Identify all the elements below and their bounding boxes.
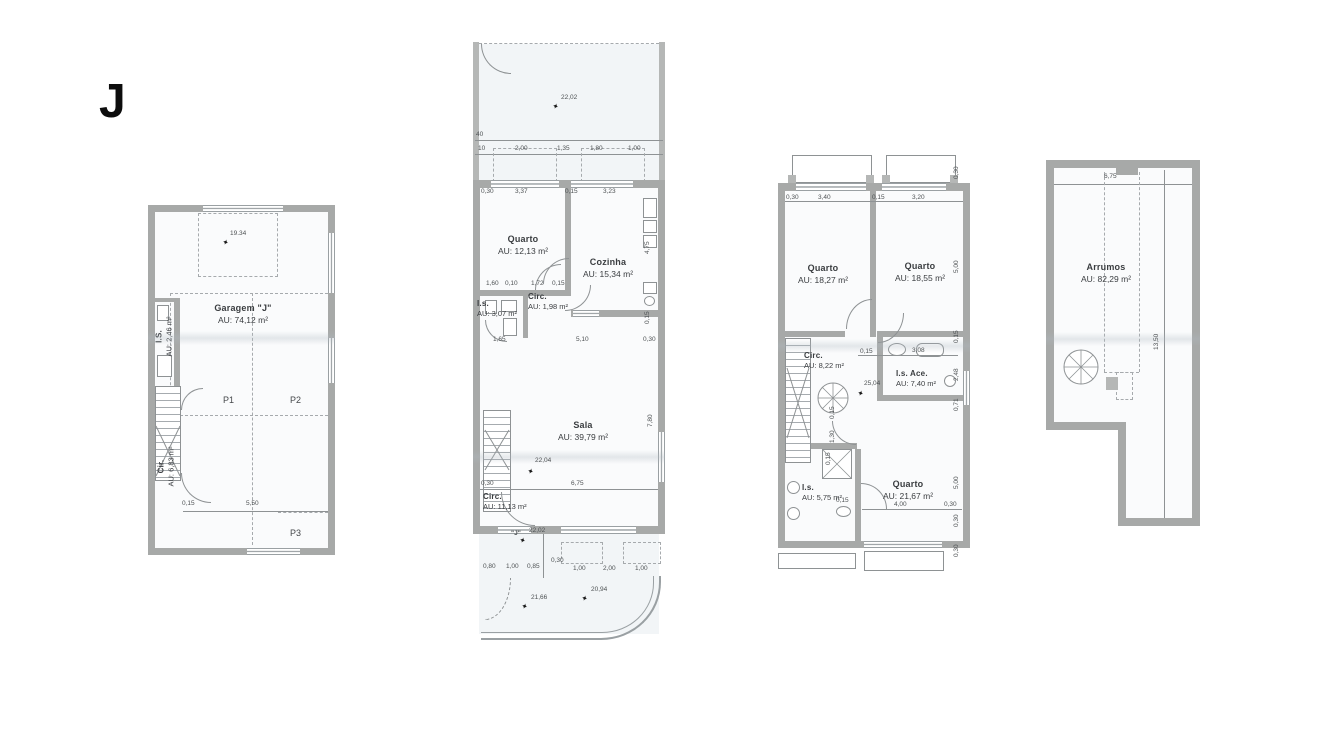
dimension-label: 1,65 (493, 337, 506, 344)
dimension-label: 25,04 (864, 381, 880, 388)
dimension-label: 7,80 (648, 414, 655, 427)
dimension-label: 0,30 (551, 558, 564, 565)
dimension-label: 10 (478, 146, 485, 153)
level-marker-icon: ✦ (221, 238, 230, 248)
dimension-label: 1,00 (573, 566, 586, 573)
dimension-label: 3,37 (515, 189, 528, 196)
dimension-label: 3,08 (912, 348, 925, 355)
dimension-label: 3,40 (818, 195, 831, 202)
dimension-label: 0,30 (786, 195, 799, 202)
level-marker-icon: ✦ (526, 467, 535, 477)
unit-letter: J (99, 74, 126, 129)
dimension-label: 0,30 (643, 337, 656, 344)
dimension-label: 0,15 (872, 195, 885, 202)
annotation-layer: 22,0240102,001,351,801,000,303,370,153,2… (473, 42, 665, 642)
dimension-label: 5,50 (246, 501, 259, 508)
dimension-label: 19.34 (230, 231, 246, 238)
annotation-layer: 19.340,155,50✦ (148, 205, 335, 555)
dimension-label: 0,15 (645, 311, 652, 324)
dimension-label: 1,72 (531, 281, 544, 288)
dimension-label: 0,80 (483, 564, 496, 571)
dimension-label: 2,00 (515, 146, 528, 153)
dimension-label: 2,00 (603, 566, 616, 573)
floor-plan-main: "J" Quarto AU: 12,13 m² Cozinha AU: 15,3… (473, 42, 665, 642)
dimension-label: 4,75 (645, 241, 652, 254)
dimension-label: 5,10 (576, 337, 589, 344)
dimension-label: 0,30 (954, 166, 961, 179)
dimension-label: 0,10 (505, 281, 518, 288)
dimension-label: 6,75 (571, 481, 584, 488)
annotation-layer: 6,7513,50 (1046, 160, 1200, 526)
floorplan-sheet: { "unit": { "letter": "J" }, "garage": {… (0, 0, 1328, 747)
dimension-label: 0,15 (552, 281, 565, 288)
floor-plan-bedrooms: Quarto AU: 18,27 m² Quarto AU: 18,55 m² … (778, 153, 970, 577)
dimension-label: 40 (476, 132, 483, 139)
dimension-label: 5,00 (954, 260, 961, 273)
dimension-label: 0,30 (954, 514, 961, 527)
dimension-label: 0,30 (944, 502, 957, 509)
level-marker-icon: ✦ (518, 536, 527, 546)
dimension-label: 1,00 (506, 564, 519, 571)
dimension-label: 6,75 (1104, 174, 1117, 181)
dimension-label: 20,94 (591, 587, 607, 594)
dimension-label: 0,15 (830, 406, 837, 419)
dimension-label: 0,15 (565, 189, 578, 196)
dimension-label: 21,66 (531, 595, 547, 602)
dimension-label: 0,85 (527, 564, 540, 571)
dimension-label: 0,15 (836, 498, 849, 505)
dimension-label: 13,50 (1154, 334, 1161, 350)
dimension-label: 0,71 (954, 398, 961, 411)
dimension-label: 22,04 (535, 458, 551, 465)
level-marker-icon: ✦ (551, 102, 560, 112)
dimension-label: 0,30 (954, 544, 961, 557)
dimension-label: 1,00 (635, 566, 648, 573)
dimension-label: 1,30 (830, 430, 837, 443)
dimension-label: 22,02 (561, 95, 577, 102)
dimension-label: 22,02 (529, 528, 545, 535)
level-marker-icon: ✦ (856, 389, 865, 399)
level-marker-icon: ✦ (580, 594, 589, 604)
dimension-label: 4,00 (894, 502, 907, 509)
annotation-layer: 0,303,400,153,200,305,000,152,480,715,00… (778, 153, 970, 577)
dimension-label: 0,15 (954, 330, 961, 343)
floor-plan-attic: Arrumos AU: 82,29 m² 6,7513,50 (1046, 160, 1200, 526)
dimension-label: 1,35 (557, 146, 570, 153)
floor-plan-garage: I.S. AU: 2,46 m² Cir. AU: 6,83 m² Garage… (148, 205, 335, 555)
dimension-label: 1,00 (628, 146, 641, 153)
dimension-label: 0,30 (481, 481, 494, 488)
dimension-label: 1,60 (486, 281, 499, 288)
dimension-label: 0,15 (860, 349, 873, 356)
dimension-label: 2,48 (954, 368, 961, 381)
dimension-label: 1,80 (590, 146, 603, 153)
dimension-label: 3,20 (912, 195, 925, 202)
dimension-label: 0,15 (182, 501, 195, 508)
dimension-label: 0,30 (481, 189, 494, 196)
dimension-label: 3,23 (603, 189, 616, 196)
dimension-label: 5,00 (954, 476, 961, 489)
dimension-label: 0,15 (826, 452, 833, 465)
level-marker-icon: ✦ (520, 602, 529, 612)
